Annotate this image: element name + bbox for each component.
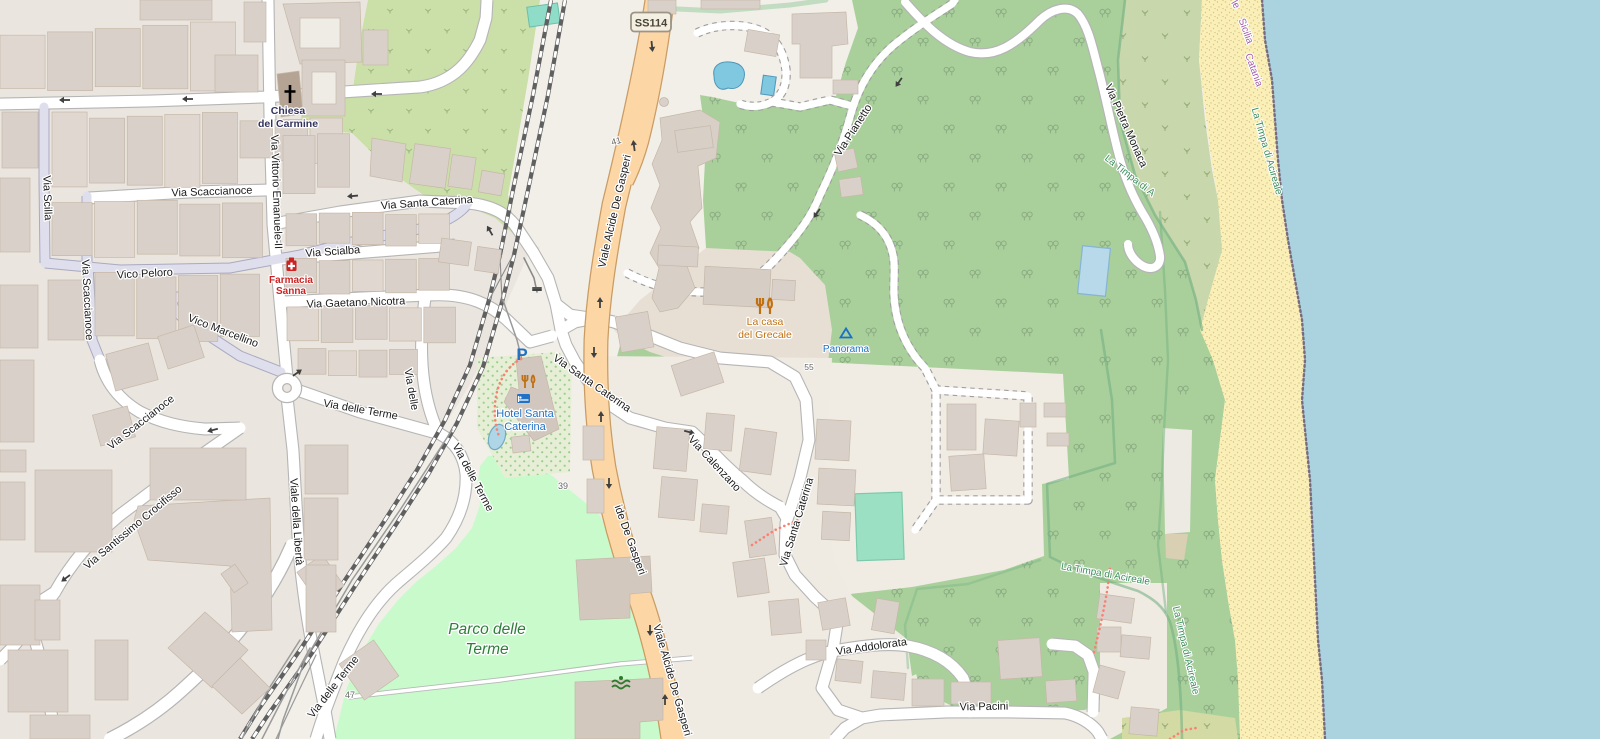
svg-text:Parco delle: Parco delle: [448, 621, 526, 638]
svg-text:Hotel Santa: Hotel Santa: [496, 408, 554, 420]
svg-text:47: 47: [345, 690, 355, 700]
svg-text:Chiesa: Chiesa: [271, 105, 306, 117]
svg-text:Panorama: Panorama: [823, 344, 870, 355]
svg-text:Caterina: Caterina: [504, 421, 546, 433]
svg-text:Terme: Terme: [465, 641, 509, 658]
svg-text:Via Pacini: Via Pacini: [959, 701, 1008, 714]
svg-text:SS114: SS114: [635, 18, 668, 30]
svg-text:39: 39: [558, 481, 568, 491]
svg-text:La casa: La casa: [747, 316, 784, 328]
svg-text:del Grecale: del Grecale: [738, 329, 792, 341]
svg-text:Via Scilla: Via Scilla: [40, 175, 54, 221]
svg-text:Farmacia: Farmacia: [269, 275, 313, 286]
svg-text:P: P: [516, 345, 527, 364]
svg-text:55: 55: [804, 362, 814, 372]
svg-text:Sanna: Sanna: [276, 286, 306, 297]
svg-text:del Carmine: del Carmine: [258, 118, 318, 130]
